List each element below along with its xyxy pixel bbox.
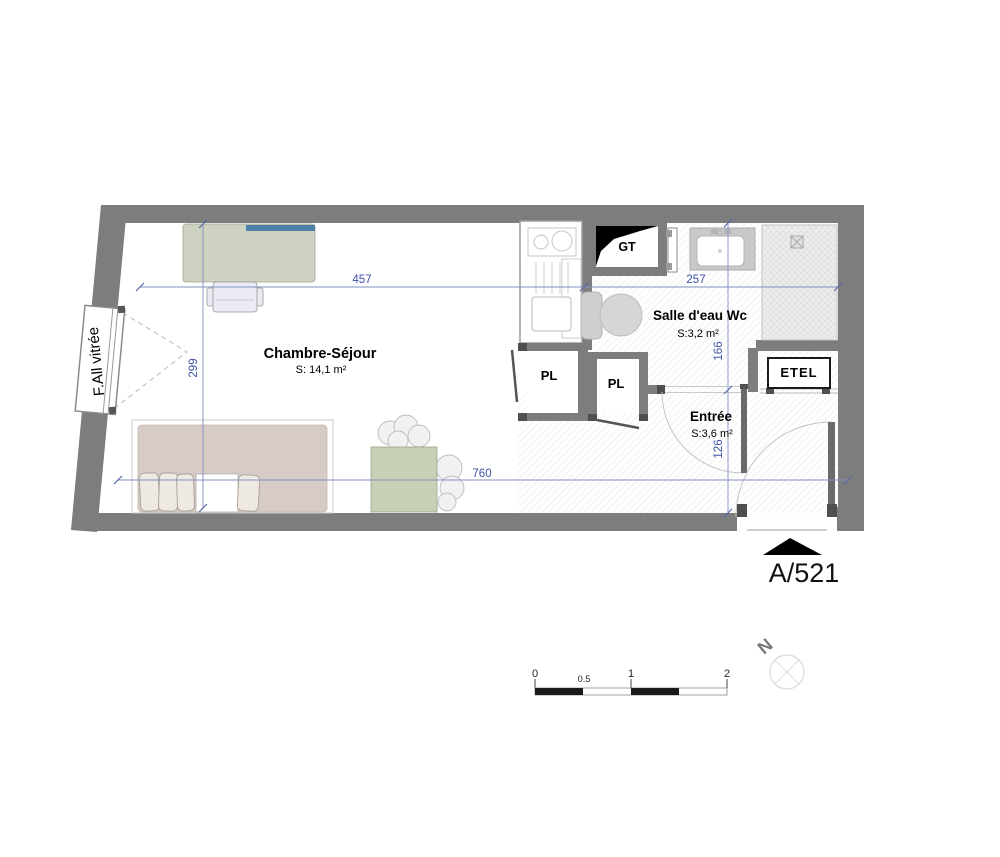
window-unit: F.All vitrée	[75, 305, 187, 414]
room-salledeau-area: S:3,2 m²	[677, 328, 719, 340]
floor-plan-drawing: GT	[0, 0, 1000, 857]
dim-257: 257	[686, 274, 705, 286]
scale-05: 0.5	[578, 674, 591, 684]
wall-bottom-right	[837, 507, 864, 531]
chair-cloud-right	[436, 455, 464, 511]
floor-plan-page: GT	[0, 0, 1000, 857]
room-entree-name: Entrée	[690, 409, 733, 424]
dining-set	[371, 415, 464, 512]
kitchenette	[520, 221, 582, 343]
dim-760: 760	[472, 468, 491, 480]
wall-entree-stub-cap	[657, 385, 665, 394]
shower	[762, 225, 837, 340]
desk-chair	[207, 282, 263, 312]
scale-bar: 0 0.5 1 2	[532, 668, 730, 695]
window-swing-dashes	[116, 313, 187, 407]
dim-126: 126	[713, 439, 725, 458]
shower-drain	[791, 236, 803, 248]
table	[371, 447, 437, 512]
scale-2: 2	[724, 668, 730, 680]
wall-below-shower	[756, 340, 838, 351]
pl2-label: PL	[608, 376, 625, 391]
bathroom-door-leaf	[741, 388, 747, 473]
plan-reference: A/521	[763, 538, 839, 588]
entrance-arrow	[763, 538, 822, 555]
room-salledeau-name: Salle d'eau Wc	[653, 308, 747, 323]
toilet	[581, 292, 642, 339]
wall-bottom-left	[95, 513, 737, 531]
entrance-door-leaf	[828, 422, 835, 517]
north-label: N	[754, 635, 777, 659]
scale-0: 0	[532, 668, 538, 680]
pl1-door-leaf	[512, 350, 517, 402]
kitchen-sink	[532, 297, 571, 331]
entrance-jamb-right	[827, 504, 837, 517]
gt-label: GT	[618, 240, 636, 254]
wall-top	[101, 205, 864, 223]
dim-166: 166	[713, 341, 725, 360]
desk-shelf	[246, 225, 315, 231]
wall-entree-stub	[648, 385, 658, 394]
scale-1: 1	[628, 668, 634, 680]
chair-cloud-top	[378, 415, 430, 451]
wall-niche-left	[748, 348, 758, 392]
wall-right	[838, 205, 864, 531]
vanity-sink	[690, 228, 755, 270]
etel-label: ETEL	[780, 365, 817, 380]
room-chambre-area: S: 14,1 m²	[296, 364, 347, 376]
dim-457: 457	[352, 274, 371, 286]
entrance-jamb-left	[737, 504, 747, 517]
bed-pillows	[139, 473, 260, 512]
bed	[132, 420, 333, 513]
room-chambre-name: Chambre-Séjour	[264, 346, 377, 362]
dim-299: 299	[188, 358, 200, 377]
pl1-label: PL	[541, 368, 558, 383]
room-entree-area: S:3,6 m²	[691, 428, 733, 440]
north-compass: N	[754, 635, 804, 689]
etel-niche: ETEL	[760, 358, 838, 394]
plan-reference-label: A/521	[769, 558, 840, 588]
gt-duct: GT	[588, 223, 667, 276]
